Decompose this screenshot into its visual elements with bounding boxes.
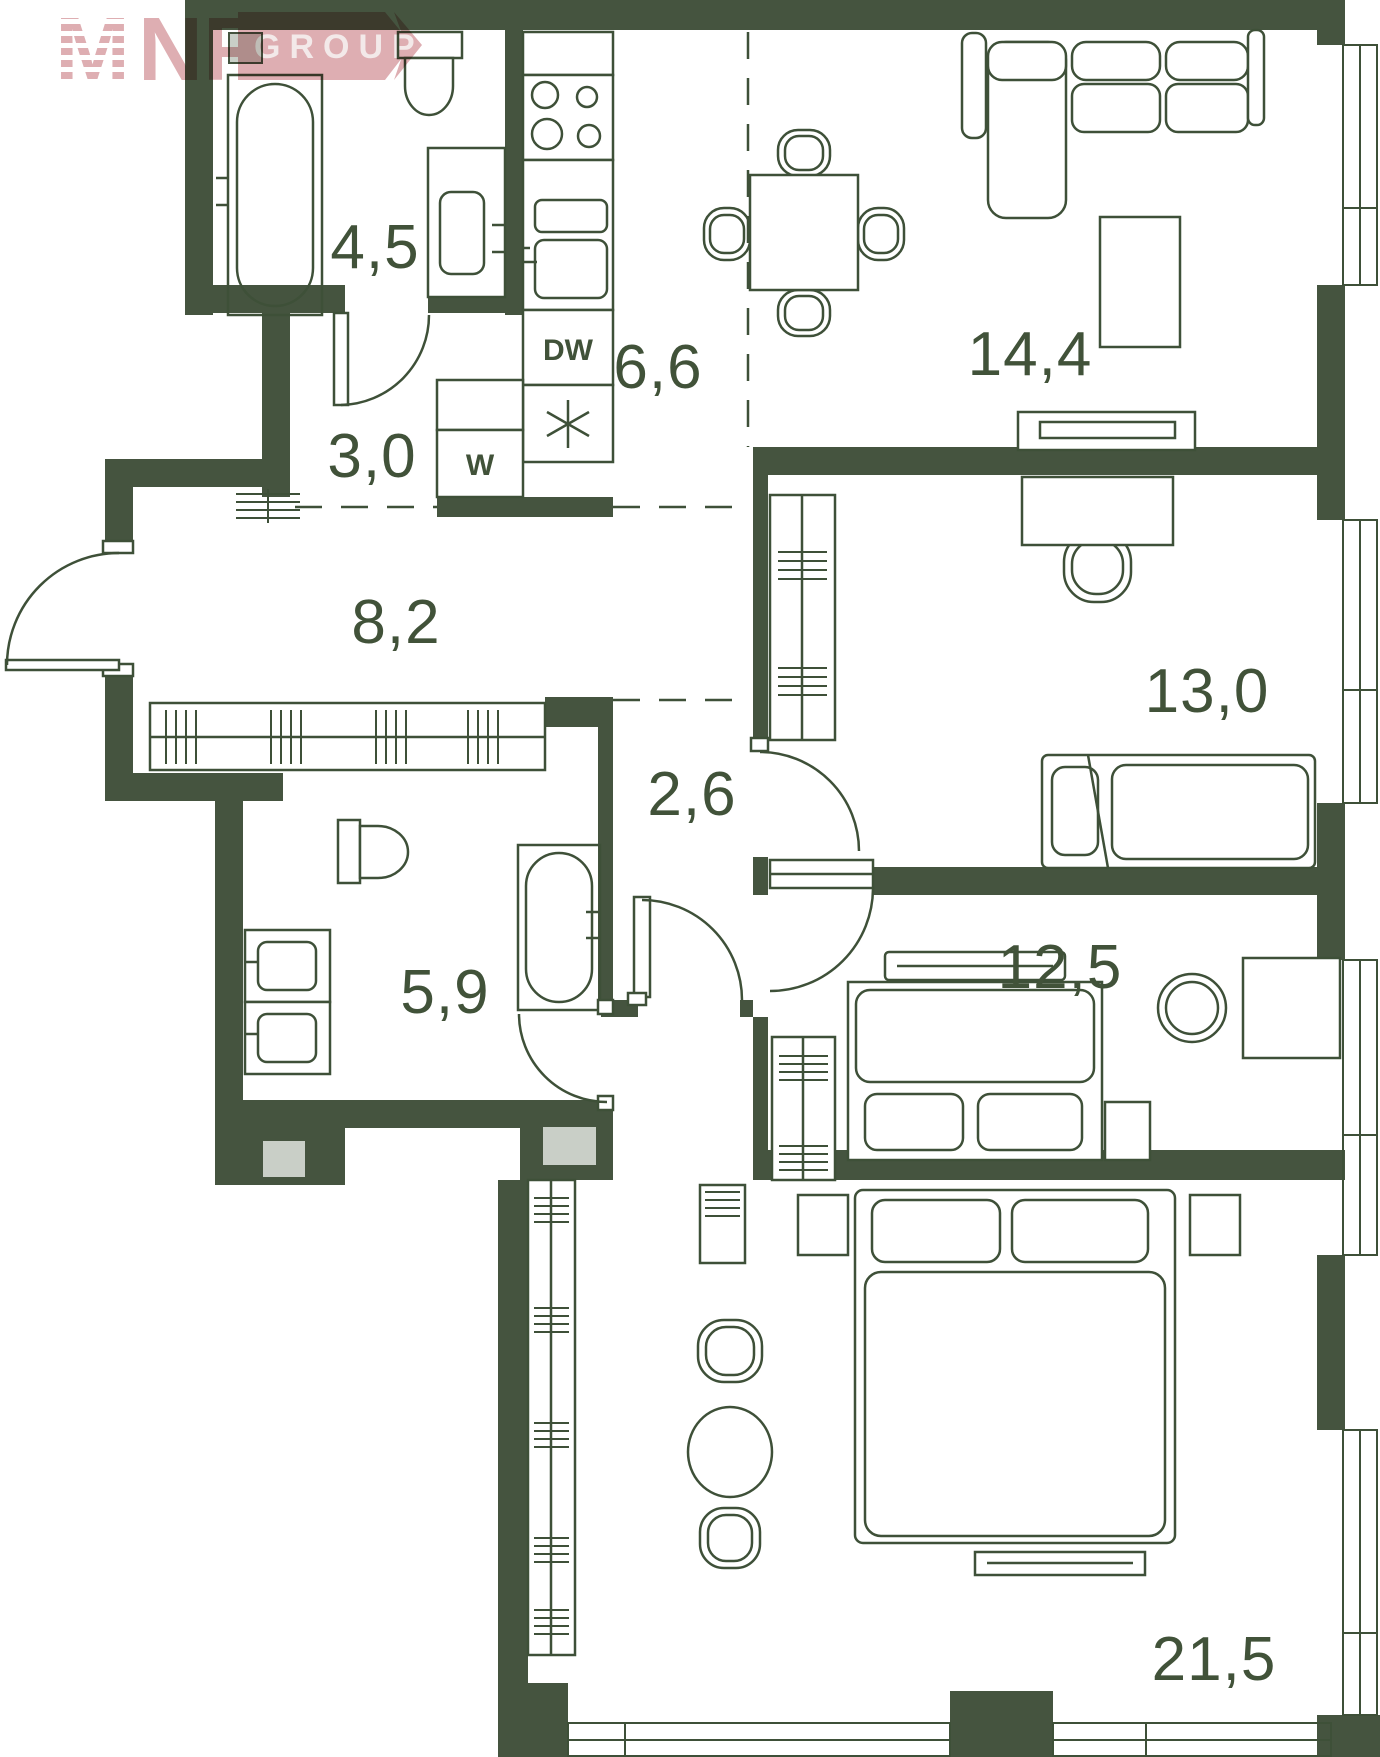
desk-bedroom-1 — [1022, 477, 1173, 602]
wardrobe-bedroom-3 — [528, 1180, 575, 1655]
furniture — [150, 30, 1340, 1655]
watermark-group-text: GROUP — [254, 28, 424, 66]
wardrobe-bedroom-1 — [770, 495, 835, 740]
sofa — [962, 30, 1264, 218]
door-bedroom-2 — [770, 860, 873, 991]
room-label-bathroom-2: 5,9 — [400, 958, 489, 1027]
dressing-table — [1158, 958, 1340, 1058]
nightstand — [1190, 1195, 1240, 1255]
room-label-bathroom-1: 4,5 — [330, 213, 419, 282]
window-living — [1343, 45, 1377, 285]
nightstand — [1105, 1102, 1150, 1160]
shaft-icon — [542, 1126, 597, 1166]
watermark: M NF GROUP — [0, 0, 430, 86]
bathtub-2 — [518, 845, 600, 1010]
window-bedroom-3 — [1343, 1430, 1377, 1715]
room-label-hallway-2: 2,6 — [647, 760, 736, 829]
armchairs-and-table — [688, 1320, 772, 1568]
radiator-corridor — [700, 1185, 745, 1263]
tv-console — [1018, 412, 1195, 450]
window-bottom-1 — [568, 1723, 950, 1756]
radiator-hall — [236, 489, 300, 523]
wardrobe-bedroom-2 — [772, 1037, 835, 1180]
floor-plan-drawing: 4,5 3,0 6,6 14,4 8,2 13,0 2,6 5,9 12,5 2… — [0, 0, 1380, 1757]
sink-vanity-1 — [428, 148, 505, 297]
floor-plan: 4,5 3,0 6,6 14,4 8,2 13,0 2,6 5,9 12,5 2… — [0, 0, 1380, 1757]
watermark-m-icon: M — [55, 0, 130, 86]
door-corridor — [628, 897, 742, 1005]
window-bedroom-1 — [1343, 520, 1377, 803]
door-bedroom-1 — [751, 738, 859, 851]
room-label-entry-hall: 8,2 — [351, 588, 440, 657]
rug — [1100, 217, 1180, 347]
window-bedroom-2 — [1343, 960, 1377, 1255]
room-label-bedroom-1: 13,0 — [1145, 657, 1270, 726]
bathtub-1 — [216, 75, 322, 315]
room-label-hallway-1: 3,0 — [327, 422, 416, 491]
shaft-icon — [262, 1140, 306, 1178]
toilet-2 — [338, 820, 408, 883]
hall-closet — [150, 703, 545, 770]
room-label-living: 14,4 — [968, 320, 1093, 389]
bed-double-2 — [855, 1190, 1175, 1575]
room-label-kitchen: 6,6 — [613, 333, 702, 402]
room-label-bedroom-3: 21,5 — [1152, 1625, 1277, 1694]
sink-vanity-2 — [245, 930, 330, 1074]
window-bottom-2 — [1053, 1723, 1331, 1756]
nightstand — [798, 1195, 848, 1255]
entrance-door — [6, 541, 133, 676]
room-label-bedroom-2: 12,5 — [998, 933, 1123, 1002]
dining-table — [704, 130, 904, 336]
washer-label: W — [466, 449, 495, 482]
bed-single — [1042, 755, 1315, 868]
door-bathroom-2 — [519, 1000, 613, 1110]
dishwasher-label: DW — [543, 334, 594, 367]
door-bathroom-1 — [334, 313, 429, 405]
